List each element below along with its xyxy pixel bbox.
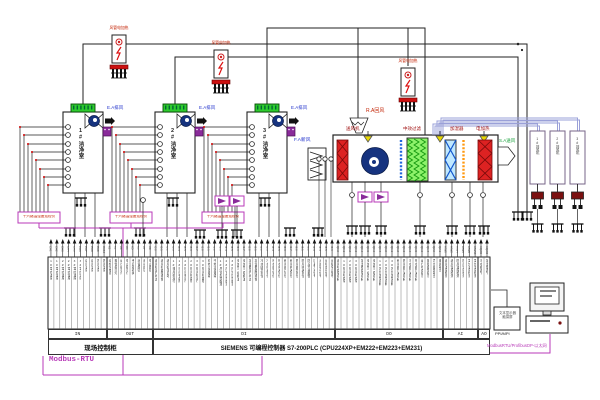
io-code-label: K1 bbox=[108, 246, 111, 258]
hvac-plc-control-diagram: 1#洁净室 2#洁净室 3#洁净室 E.A排风 E.A排风 E.A排风 风管电加… bbox=[0, 0, 600, 400]
io-code-label: Q0.4 bbox=[360, 246, 363, 258]
io-signal-label: 报警指示灯 bbox=[114, 259, 117, 327]
plc-controller-label: SIEMENS 可编程控制器 S7-200PLC (CPU224XP+EM222… bbox=[221, 343, 423, 352]
io-code-label: I3.2 bbox=[307, 246, 310, 258]
io-signal-label: 新风阀关到位 bbox=[289, 259, 292, 327]
io-signal-label: 2#室内温度 bbox=[61, 259, 64, 327]
io-code-label: I1.6 bbox=[236, 246, 239, 258]
cleanroom-3-name: 3#洁净室 bbox=[261, 128, 267, 159]
io-code-label: I2.1 bbox=[254, 246, 257, 258]
io-code-label: I2.3 bbox=[265, 246, 268, 258]
io-signal-label: 冷水阀开关控制 bbox=[408, 259, 411, 327]
io-signal-label: 回风湿度 bbox=[102, 259, 105, 327]
th-scanner-2-label: 十六路温湿度巡检仪 bbox=[111, 215, 151, 219]
field-cabinet-label: 现场控制柜 bbox=[84, 342, 117, 352]
io-signal-label: 1#风管加热超温 bbox=[218, 259, 221, 327]
io-code-label: I0.1 bbox=[160, 246, 163, 258]
io-signal-label: 初效过滤堵塞 bbox=[207, 259, 210, 327]
io-code-label: K8 bbox=[148, 246, 151, 258]
io-signal-label: 室外湿度检测 bbox=[473, 259, 476, 327]
filter-label: 中效过滤 bbox=[403, 127, 421, 132]
io-signal-label: 3#排风机运行 bbox=[195, 259, 198, 327]
io-signal-label: 回风温度 bbox=[96, 259, 99, 327]
io-signal-label: 3#排风机故障 bbox=[201, 259, 204, 327]
duct-heater-label-1: 风管电加热 bbox=[105, 27, 133, 31]
io-signal-label: 3#室内湿度 bbox=[78, 259, 81, 327]
io-code-label: Q1.3 bbox=[402, 246, 405, 258]
io-signal-label: 停止指示灯 bbox=[125, 259, 128, 327]
io-section-OUT: OUT bbox=[107, 329, 153, 339]
io-signal-label: 新风阀开到位 bbox=[283, 259, 286, 327]
io-code-label: CH8 bbox=[90, 246, 93, 258]
io-code-label: Q1.1 bbox=[390, 246, 393, 258]
io-code-label: Q0.3 bbox=[354, 246, 357, 258]
io-signal-label: 3#室内温度 bbox=[72, 259, 75, 327]
io-signal-label: 新风阀开关控制 bbox=[396, 259, 399, 327]
io-code-label: Q2.1 bbox=[438, 246, 441, 258]
io-section-IN: IN bbox=[48, 329, 107, 339]
io-signal-label: 电加热一级控制 bbox=[366, 259, 369, 327]
io-signal-label: 停止按钮 bbox=[148, 259, 151, 327]
ppi-mpi-label: PPI/MPI bbox=[495, 332, 510, 336]
io-code-label: AQW2 bbox=[485, 246, 488, 258]
io-code-label: I0.4 bbox=[177, 246, 180, 258]
io-signal-label: 1#风管加热控制 bbox=[378, 259, 381, 327]
io-signal-label: 1#排风机运行 bbox=[171, 259, 174, 327]
supply-air-label: S.A送风 bbox=[499, 139, 515, 144]
supply-fan-label: 送风机 bbox=[346, 127, 360, 132]
io-code-label: I0.3 bbox=[172, 246, 175, 258]
io-code-label: Q1.4 bbox=[408, 246, 411, 258]
io-code-label: Q0.7 bbox=[378, 246, 381, 258]
io-signal-label: 加湿量调节 bbox=[485, 259, 488, 327]
io-code-label: I0.5 bbox=[183, 246, 186, 258]
io-code-label: I2.7 bbox=[289, 246, 292, 258]
io-code-label: AIW6 bbox=[461, 246, 464, 258]
io-signal-label: 声光报警输出 bbox=[432, 259, 435, 327]
humidifier-label: 加湿器 bbox=[450, 127, 464, 132]
io-code-label: AIW10 bbox=[473, 246, 476, 258]
io-signal-label: 3#风管加热控制 bbox=[390, 259, 393, 327]
io-code-label: CH1 bbox=[49, 246, 52, 258]
io-code-label: AIW2 bbox=[450, 246, 453, 258]
io-section-DI: DI bbox=[153, 329, 335, 339]
io-code-label: CH10 bbox=[102, 246, 105, 258]
io-signal-label: 故障报警指示 bbox=[426, 259, 429, 327]
io-signal-label: 回风温度检测 bbox=[455, 259, 458, 327]
io-code-label: Q0.2 bbox=[348, 246, 351, 258]
io-code-label: I3.4 bbox=[318, 246, 321, 258]
exhaust-fan-2-name: 2#排风机 bbox=[555, 137, 558, 155]
io-signal-label: 送风机启停控制 bbox=[336, 259, 339, 327]
io-signal-label: 加湿器运行状态 bbox=[248, 259, 251, 327]
io-code-label: I1.3 bbox=[219, 246, 222, 258]
duct-heater-label-2: 风管电加热 bbox=[207, 42, 235, 46]
io-signal-label: 消防联动信号 bbox=[318, 259, 321, 327]
exhaust-fan-3-name: 3#排风机 bbox=[575, 137, 578, 155]
exhaust-air-label-1: E.A排风 bbox=[107, 106, 123, 111]
io-signal-label: 2#排风机运行 bbox=[183, 259, 186, 327]
return-air-label: R.A回风 bbox=[366, 109, 384, 114]
io-signal-label: 热水阀关到位 bbox=[277, 259, 280, 327]
io-code-label: CH6 bbox=[78, 246, 81, 258]
io-code-label: K3 bbox=[119, 246, 122, 258]
io-code-label: K5 bbox=[131, 246, 134, 258]
io-signal-label: 启动按钮 bbox=[142, 259, 145, 327]
io-section-label: DI bbox=[241, 332, 246, 337]
io-code-label: I3.0 bbox=[295, 246, 298, 258]
io-code-label: Q1.5 bbox=[414, 246, 417, 258]
text-display-line2: 触摸屏 bbox=[496, 315, 519, 319]
exhaust-fan-1-name: 1#排风机 bbox=[535, 137, 538, 155]
io-code-label: AIW8 bbox=[467, 246, 470, 258]
io-signal-label: 远程启动信号 bbox=[324, 259, 327, 327]
th-scanner-3-label: 十六路温湿度巡检仪 bbox=[203, 215, 243, 219]
io-code-label: I3.1 bbox=[301, 246, 304, 258]
cleanroom-2-name: 2#洁净室 bbox=[169, 128, 175, 159]
io-code-label: AIW4 bbox=[456, 246, 459, 258]
io-section-AO: AO bbox=[478, 329, 490, 339]
io-code-label: I2.4 bbox=[271, 246, 274, 258]
io-code-label: I0.2 bbox=[166, 246, 169, 258]
io-signal-label: 消音按钮 bbox=[137, 259, 140, 327]
io-code-label: I3.6 bbox=[330, 246, 333, 258]
io-code-label: Q0.0 bbox=[336, 246, 339, 258]
io-section-label: IN bbox=[75, 332, 80, 337]
io-section-label: AO bbox=[481, 332, 486, 337]
io-code-label: Q2.0 bbox=[432, 246, 435, 258]
io-signal-label: 回风湿度检测 bbox=[461, 259, 464, 327]
io-signal-label: 中效过滤堵塞 bbox=[213, 259, 216, 327]
io-code-label: CH3 bbox=[61, 246, 64, 258]
io-signal-label: 电加热二级控制 bbox=[372, 259, 375, 327]
io-code-label: K4 bbox=[125, 246, 128, 258]
io-code-label: CH5 bbox=[73, 246, 76, 258]
io-code-label: AIW0 bbox=[444, 246, 447, 258]
io-signal-label: 热水阀开关控制 bbox=[414, 259, 417, 327]
io-code-label: I1.1 bbox=[207, 246, 210, 258]
io-signal-label: 1#排风机启停 bbox=[342, 259, 345, 327]
io-signal-label: 电加热一级超温 bbox=[236, 259, 239, 327]
io-code-label: CH7 bbox=[84, 246, 87, 258]
io-signal-label: 冷水阀调节 bbox=[479, 259, 482, 327]
io-signal-label: 远程停止信号 bbox=[330, 259, 333, 327]
ethernet-bus-label: ModbusRTU/ProfibusDP-以太网 bbox=[487, 344, 547, 348]
io-signal-label: 3#风管加热超温 bbox=[230, 259, 233, 327]
io-code-label: Q0.6 bbox=[372, 246, 375, 258]
io-signal-label: 室外温度检测 bbox=[467, 259, 470, 327]
cleanroom-1-name: 1#洁净室 bbox=[77, 128, 83, 159]
th-scanner-1-label: 十六路温湿度巡检仪 bbox=[19, 215, 59, 219]
io-section-label: OUT bbox=[126, 332, 134, 337]
io-signal-label: 冷水阀关到位 bbox=[265, 259, 268, 327]
io-signal-label: 送风温度 bbox=[84, 259, 87, 327]
io-signal-label: 2#室内湿度 bbox=[67, 259, 70, 327]
io-section-label: DO bbox=[386, 332, 391, 337]
io-signal-label: 1#室内温度 bbox=[49, 259, 52, 327]
io-section-label: AI bbox=[458, 332, 463, 337]
text-display-box-label: 文本显示器 触摸屏 bbox=[496, 311, 519, 320]
io-code-label: I0.0 bbox=[154, 246, 157, 258]
io-signal-label: 冷水阀开到位 bbox=[260, 259, 263, 327]
io-code-label: K7 bbox=[142, 246, 145, 258]
io-code-label: I1.4 bbox=[224, 246, 227, 258]
io-code-label: Q0.5 bbox=[366, 246, 369, 258]
io-signal-label: 回风阀开关控制 bbox=[402, 259, 405, 327]
io-code-label: I0.6 bbox=[189, 246, 192, 258]
io-signal-label: 1#室内湿度 bbox=[55, 259, 58, 327]
io-code-label: Q1.6 bbox=[420, 246, 423, 258]
io-code-label: I2.5 bbox=[277, 246, 280, 258]
io-signal-label: 电加热二级超温 bbox=[242, 259, 245, 327]
electric-heater-label: 电加热 bbox=[476, 127, 490, 132]
io-signal-label: 送风温度检测 bbox=[444, 259, 447, 327]
io-code-label: K2 bbox=[114, 246, 117, 258]
io-code-label: CH4 bbox=[67, 246, 70, 258]
io-section-AI: AI bbox=[443, 329, 478, 339]
io-code-label: I3.5 bbox=[324, 246, 327, 258]
io-signal-label: 回风阀关到位 bbox=[301, 259, 304, 327]
io-signal-label: 备用输出 bbox=[438, 259, 441, 327]
io-signal-label: 热水阀开到位 bbox=[271, 259, 274, 327]
io-code-label: I2.2 bbox=[260, 246, 263, 258]
io-signal-label: 送风湿度 bbox=[90, 259, 93, 327]
io-section-DO: DO bbox=[335, 329, 443, 339]
io-signal-label: 送风湿度检测 bbox=[450, 259, 453, 327]
io-signal-label: 送风机运行状态 bbox=[154, 259, 157, 327]
io-code-label: Q1.2 bbox=[396, 246, 399, 258]
io-code-label: I2.6 bbox=[283, 246, 286, 258]
field-cabinet-cell: 现场控制柜 bbox=[48, 339, 153, 355]
io-signal-label: 巡检仪电源 bbox=[108, 259, 111, 327]
io-signal-label: 回风阀开到位 bbox=[295, 259, 298, 327]
io-signal-label: 加湿器故障报警 bbox=[254, 259, 257, 327]
io-signal-label: 送风机故障报警 bbox=[160, 259, 163, 327]
io-signal-label: 2#风管加热超温 bbox=[224, 259, 227, 327]
io-signal-label: 加湿器启停控制 bbox=[360, 259, 363, 327]
io-code-label: K6 bbox=[137, 246, 140, 258]
io-code-label: I3.3 bbox=[312, 246, 315, 258]
io-code-label: CH2 bbox=[55, 246, 58, 258]
io-code-label: I1.5 bbox=[230, 246, 233, 258]
io-signal-label: 2#风管加热控制 bbox=[384, 259, 387, 327]
io-signal-label: 2#排风机启停 bbox=[348, 259, 351, 327]
io-code-label: I1.0 bbox=[201, 246, 204, 258]
io-code-label: I1.7 bbox=[242, 246, 245, 258]
io-signal-label: 运行状态指示 bbox=[420, 259, 423, 327]
io-code-label: Q0.1 bbox=[342, 246, 345, 258]
fresh-air-label: F.A新风 bbox=[294, 139, 311, 144]
plc-cell: SIEMENS 可编程控制器 S7-200PLC (CPU224XP+EM222… bbox=[153, 339, 490, 355]
io-signal-label: 1#排风机故障 bbox=[177, 259, 180, 327]
io-code-label: Q1.0 bbox=[384, 246, 387, 258]
io-code-label: Q1.7 bbox=[426, 246, 429, 258]
io-code-label: CH9 bbox=[96, 246, 99, 258]
io-signal-label: 运行指示灯 bbox=[119, 259, 122, 327]
io-signal-label: 3#排风机启停 bbox=[354, 259, 357, 327]
duct-heater-label-3: 风管电加热 bbox=[394, 60, 422, 64]
io-signal-label: 压差开关信号 bbox=[312, 259, 315, 327]
io-code-label: AQW0 bbox=[479, 246, 482, 258]
exhaust-air-label-2: E.A排风 bbox=[199, 106, 215, 111]
io-code-label: I0.7 bbox=[195, 246, 198, 258]
io-signal-label: 防冻开关报警 bbox=[306, 259, 309, 327]
io-signal-label: 手自动转换 bbox=[131, 259, 134, 327]
io-code-label: I2.0 bbox=[248, 246, 251, 258]
io-signal-label: 2#排风机故障 bbox=[189, 259, 192, 327]
io-signal-label: 送风机手自动 bbox=[166, 259, 169, 327]
exhaust-air-label-3: E.A排风 bbox=[291, 106, 307, 111]
io-code-label: I1.2 bbox=[213, 246, 216, 258]
modbus-rtu-label: Modbus-RTU bbox=[49, 357, 94, 365]
